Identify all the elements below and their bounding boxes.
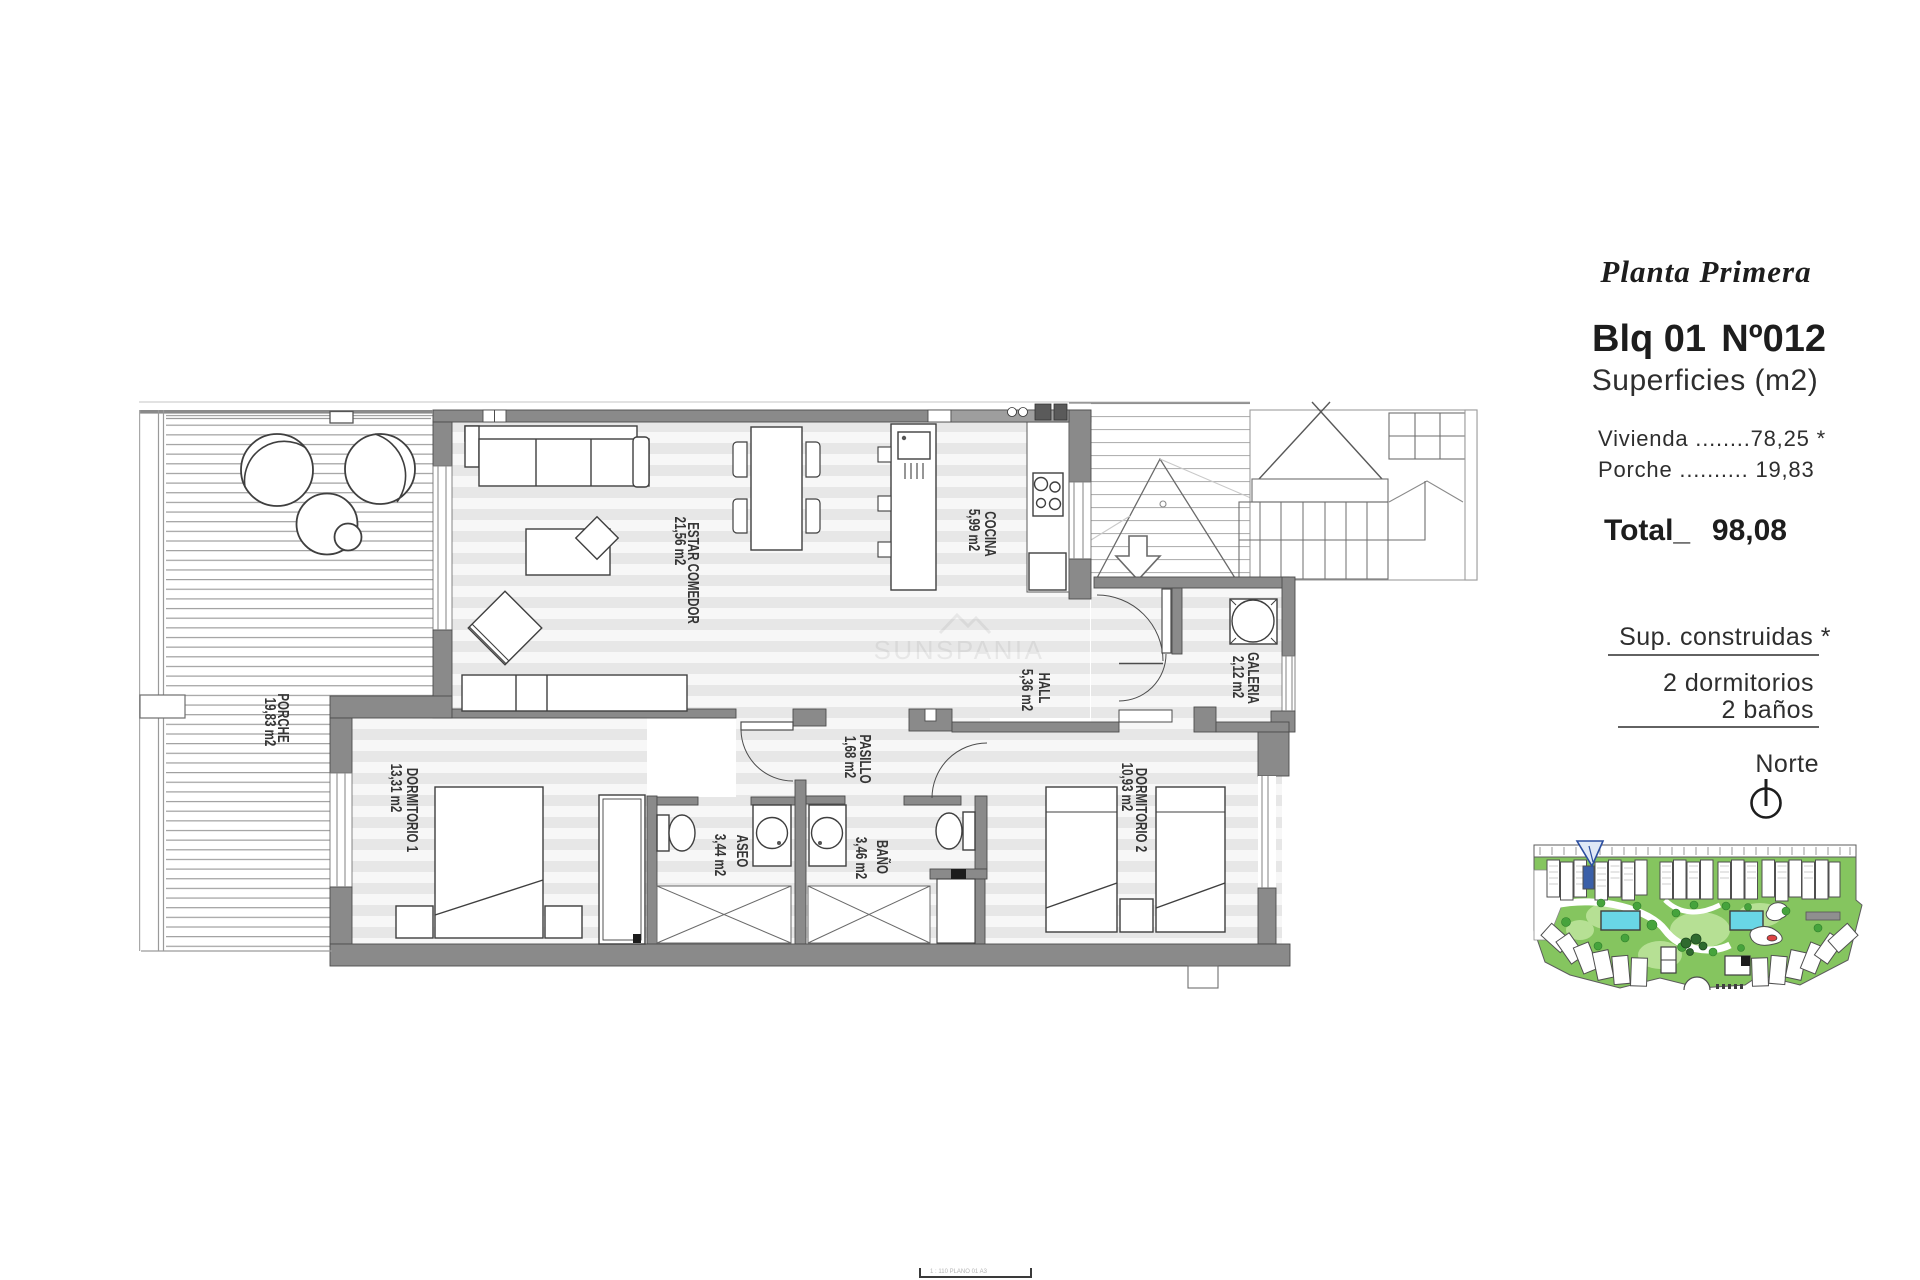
svg-text:Porche .......... 19,83: Porche .......... 19,83 <box>1598 457 1815 482</box>
svg-text:5,99 m2: 5,99 m2 <box>966 509 984 551</box>
svg-text:HALL: HALL <box>1036 673 1054 704</box>
svg-text:Vivienda ........78,25 *: Vivienda ........78,25 * <box>1598 426 1826 451</box>
svg-text:13,31 m2: 13,31 m2 <box>388 764 406 813</box>
svg-text:Total_: Total_ <box>1604 514 1690 547</box>
svg-text:2 baños: 2 baños <box>1722 696 1814 724</box>
svg-text:Norte: Norte <box>1755 750 1819 778</box>
svg-text:5,36 m2: 5,36 m2 <box>1019 669 1037 711</box>
svg-text:98,08: 98,08 <box>1712 514 1787 547</box>
svg-text:Planta Primera: Planta Primera <box>1599 254 1811 289</box>
svg-text:BAÑO: BAÑO <box>874 840 894 874</box>
svg-text:10,93 m2: 10,93 m2 <box>1119 763 1137 812</box>
svg-text:19,83 m2: 19,83 m2 <box>262 698 280 747</box>
svg-text:SUNSPANIA: SUNSPANIA <box>874 635 1045 665</box>
svg-text:ASEO: ASEO <box>734 835 752 868</box>
svg-text:Superficies (m2): Superficies (m2) <box>1592 364 1818 397</box>
svg-text:1,68 m2: 1,68 m2 <box>842 736 860 778</box>
svg-text:21,56 m2: 21,56 m2 <box>672 517 690 566</box>
svg-text:3,46 m2: 3,46 m2 <box>853 837 871 879</box>
svg-text:Nº012: Nº012 <box>1721 318 1826 360</box>
svg-text:1 : 110 PLANO 01 A3: 1 : 110 PLANO 01 A3 <box>930 1269 988 1275</box>
svg-text:Blq 01: Blq 01 <box>1592 318 1706 360</box>
svg-text:3,44 m2: 3,44 m2 <box>712 834 730 876</box>
svg-text:2 dormitorios: 2 dormitorios <box>1663 669 1814 697</box>
svg-text:2,12 m2: 2,12 m2 <box>1230 656 1248 698</box>
svg-text:Sup. construidas *: Sup. construidas * <box>1619 623 1831 651</box>
